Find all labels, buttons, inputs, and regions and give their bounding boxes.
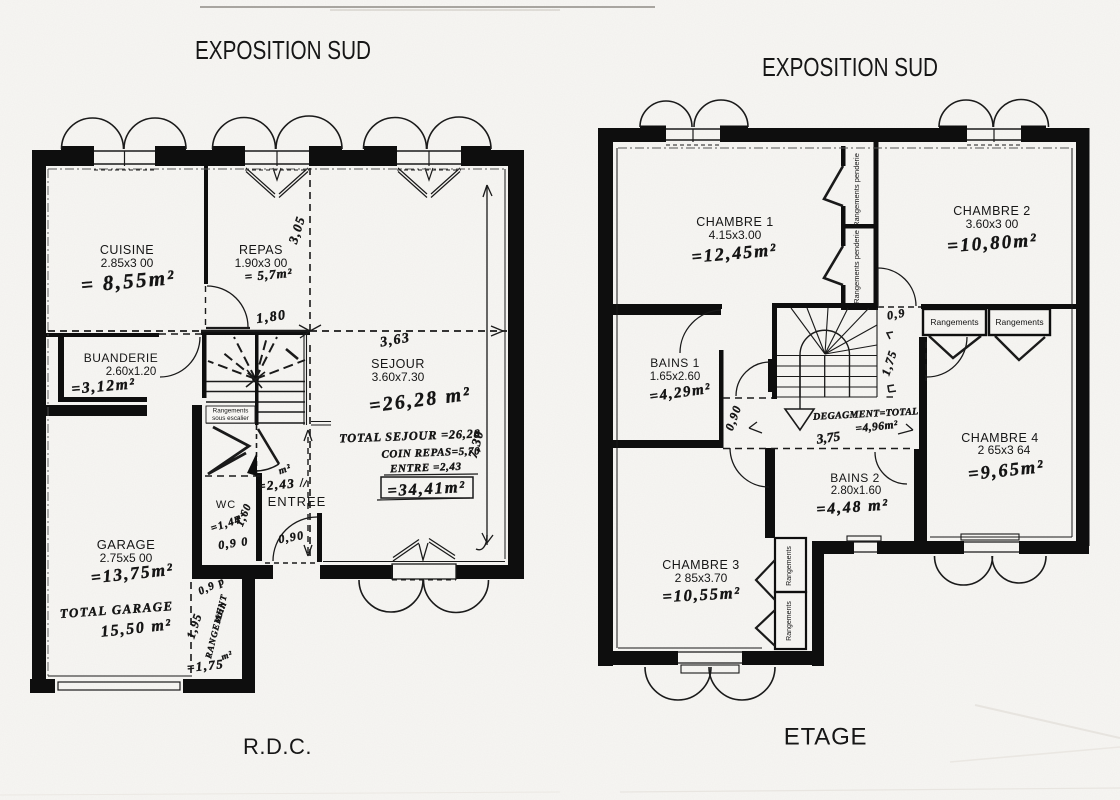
- svg-text:BAINS 1: BAINS 1: [650, 356, 700, 370]
- svg-text:1.65x2.60: 1.65x2.60: [650, 371, 701, 383]
- svg-text:SEJOUR: SEJOUR: [371, 357, 425, 371]
- svg-text:Rangements penderie: Rangements penderie: [852, 153, 861, 227]
- svg-text:sous escalier: sous escalier: [212, 415, 249, 422]
- svg-text:CUISINE: CUISINE: [100, 243, 154, 257]
- svg-text:ENTREE: ENTREE: [268, 494, 327, 509]
- svg-text:GARAGE: GARAGE: [97, 537, 156, 552]
- svg-text:3.60x7.30: 3.60x7.30: [372, 370, 425, 384]
- svg-text:EXPOSITION SUD: EXPOSITION SUD: [195, 35, 371, 65]
- svg-text:ETAGE: ETAGE: [784, 724, 868, 751]
- svg-text:2 65x3 64: 2 65x3 64: [978, 443, 1031, 457]
- svg-text:CHAMBRE 1: CHAMBRE 1: [696, 215, 773, 229]
- svg-text:BAINS 2: BAINS 2: [830, 471, 880, 485]
- svg-text:3.60x3 00: 3.60x3 00: [966, 217, 1019, 231]
- svg-text:R.D.C.: R.D.C.: [243, 734, 312, 759]
- svg-text:CHAMBRE 3: CHAMBRE 3: [662, 558, 739, 572]
- svg-text:ENTRE =2,43: ENTRE =2,43: [389, 461, 462, 476]
- svg-text:4.15x3.00: 4.15x3.00: [709, 228, 762, 242]
- svg-text:EXPOSITION SUD: EXPOSITION SUD: [762, 52, 938, 82]
- svg-text:REPAS: REPAS: [239, 243, 283, 257]
- svg-text:CHAMBRE 2: CHAMBRE 2: [953, 204, 1030, 218]
- svg-text:Rangements: Rangements: [213, 408, 249, 415]
- svg-text:2.80x1.60: 2.80x1.60: [831, 485, 882, 497]
- svg-text:Rangements: Rangements: [930, 317, 978, 327]
- svg-text:Rangements penderie: Rangements penderie: [852, 230, 861, 304]
- svg-text:Rangements: Rangements: [995, 317, 1043, 327]
- svg-text:Rangements: Rangements: [786, 601, 793, 641]
- svg-text:Rangements: Rangements: [786, 546, 793, 586]
- svg-text:2 85x3.70: 2 85x3.70: [675, 571, 728, 585]
- svg-text:BUANDERIE: BUANDERIE: [84, 351, 159, 365]
- svg-text:WC: WC: [216, 499, 236, 511]
